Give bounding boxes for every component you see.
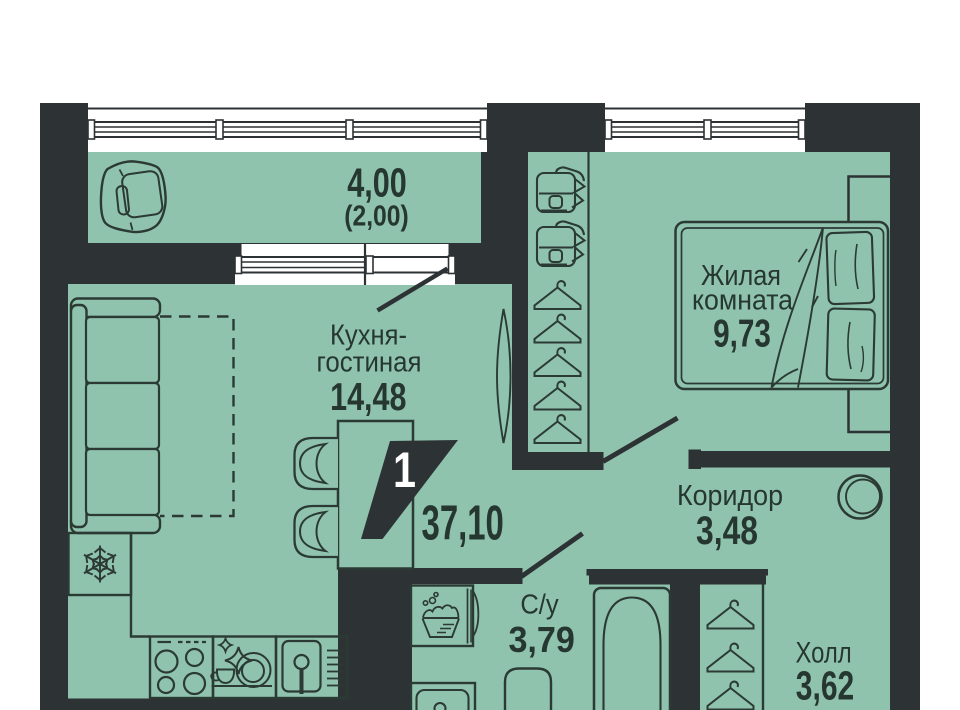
- svg-text:14,48: 14,48: [330, 376, 406, 419]
- svg-text:1: 1: [393, 442, 416, 498]
- svg-text:9,73: 9,73: [713, 313, 771, 356]
- svg-text:37,10: 37,10: [422, 497, 504, 551]
- svg-text:4,00: 4,00: [347, 160, 407, 206]
- svg-text:гостиная: гостиная: [317, 347, 422, 379]
- svg-text:3,79: 3,79: [508, 619, 575, 660]
- svg-text:3,62: 3,62: [796, 663, 854, 709]
- svg-text:С/у: С/у: [520, 589, 558, 620]
- svg-text:Коридор: Коридор: [677, 480, 783, 512]
- svg-text:(2,00): (2,00): [344, 201, 409, 233]
- svg-text:3,48: 3,48: [696, 509, 758, 553]
